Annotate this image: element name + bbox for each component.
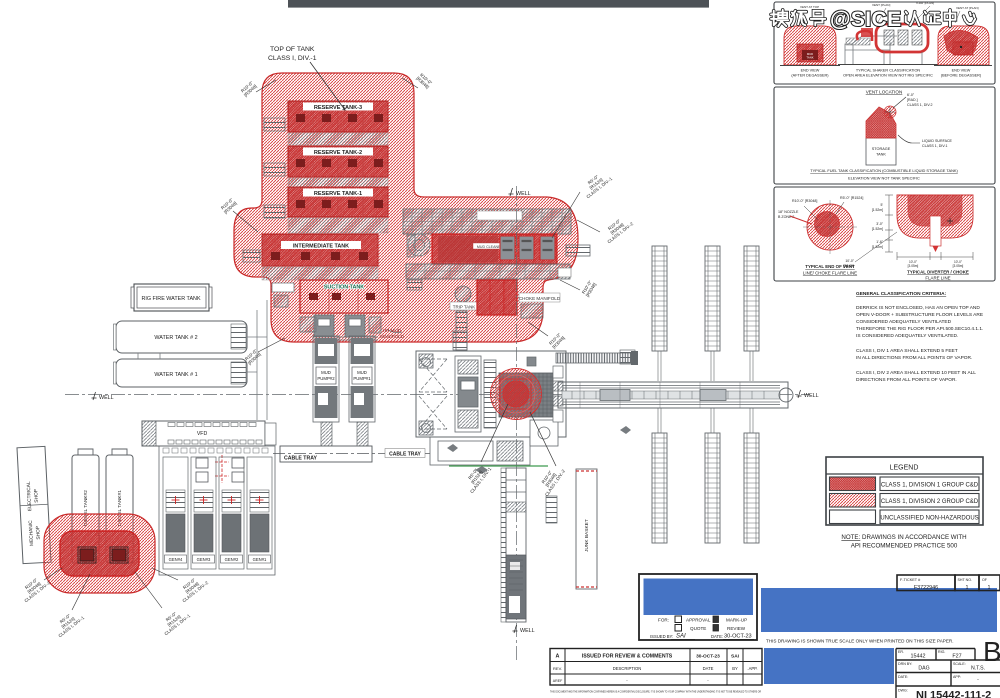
svg-text:RESERVE TANK-1: RESERVE TANK-1 [314, 191, 362, 197]
svg-text:VFD: VFD [197, 431, 208, 437]
svg-text:[1.52m]: [1.52m] [872, 208, 883, 212]
svg-text:INTERMEDIATE TANK: INTERMEDIATE TANK [293, 244, 349, 250]
svg-text:SAI: SAI [676, 634, 686, 640]
svg-text:OPEN V-DOOR + SUBSTRUCTURE FLO: OPEN V-DOOR + SUBSTRUCTURE FLOOR LEVELS … [856, 312, 983, 318]
svg-text:(BEFORE DEGASSER): (BEFORE DEGASSER) [941, 74, 982, 78]
svg-text:ELEVATION VIEW NOT TANK SPECIF: ELEVATION VIEW NOT TANK SPECIFIC [848, 176, 920, 181]
svg-text:CLASS I, DIV.-1: CLASS I, DIV.-1 [268, 55, 317, 62]
svg-text:STORAGE: STORAGE [872, 147, 891, 151]
svg-text:REVIEW: REVIEW [727, 626, 746, 631]
svg-text:THIS DOCUMENT AND THE INFORMAT: THIS DOCUMENT AND THE INFORMATION CONTAI… [550, 690, 761, 694]
svg-text:DATE: DATE [703, 666, 714, 671]
svg-text:F3722946: F3722946 [914, 585, 938, 591]
svg-text:[RAD.]: [RAD.] [907, 98, 918, 102]
svg-text:LIQUID SURFACE: LIQUID SURFACE [922, 139, 953, 143]
svg-text:A: A [556, 654, 560, 660]
svg-text:APPROVAL: APPROVAL [686, 618, 711, 623]
svg-text:R5'-0" [R1524]: R5'-0" [R1524] [840, 196, 863, 200]
svg-text:RIG FIRE WATER TANK: RIG FIRE WATER TANK [141, 296, 201, 302]
svg-text:IN ALL DIRECTIONS FROM ALL POI: IN ALL DIRECTIONS FROM ALL POINTS OF VAP… [856, 355, 972, 361]
svg-text:RESERVE TANK-2: RESERVE TANK-2 [314, 150, 362, 156]
svg-text:CLASS I, DIV 2 AREA SHALL EXTE: CLASS I, DIV 2 AREA SHALL EXTEND 10 FEET… [856, 370, 976, 376]
svg-text:6'-0": 6'-0" [907, 93, 915, 97]
svg-text:RIG.: RIG. [938, 650, 945, 654]
svg-text:CLASS 1, DIVISION 2 GROUP C&D: CLASS 1, DIVISION 2 GROUP C&D [881, 499, 979, 505]
svg-text:DAG: DAG [918, 666, 929, 672]
svg-text:18" NOZZLE: 18" NOZZLE [778, 210, 799, 214]
svg-text:CONSIDERED ADEQUATELY VENTILAT: CONSIDERED ADEQUATELY VENTILATED [856, 319, 952, 325]
svg-text:[3.05m]: [3.05m] [908, 264, 919, 268]
svg-text:TANK: TANK [876, 153, 886, 157]
svg-text:AREF: AREF [553, 679, 563, 683]
svg-text:V-DR' [PLAN]: V-DR' [PLAN] [916, 1, 934, 5]
svg-text:DESCRIPTION: DESCRIPTION [613, 666, 642, 671]
svg-text:GEN#2: GEN#2 [225, 557, 239, 562]
svg-text:HP MUD: HP MUD [383, 328, 402, 333]
svg-text:SUCTION TANK: SUCTION TANK [324, 285, 364, 291]
svg-text:PUMP#1: PUMP#1 [353, 376, 371, 381]
svg-text:TYPICAL FUEL TANK CLASSIFICATI: TYPICAL FUEL TANK CLASSIFICATION (COMBUS… [810, 168, 958, 173]
svg-text:TYPICAL SHAKER CLASSIFICATION: TYPICAL SHAKER CLASSIFICATION [856, 69, 921, 73]
svg-text:GEN#3: GEN#3 [197, 557, 211, 562]
svg-text:THIS DRAWING IS SHOWN TRUE SCA: THIS DRAWING IS SHOWN TRUE SCALE ONLY WH… [766, 639, 954, 644]
svg-text:R10'-0" [R3048]: R10'-0" [R3048] [792, 199, 817, 203]
svg-text:DRN BY:: DRN BY: [898, 662, 912, 666]
svg-text:[1.52m]: [1.52m] [872, 227, 883, 231]
svg-text:DATE:: DATE: [898, 675, 908, 679]
svg-text:@SICE: @SICE [830, 8, 902, 31]
svg-text:MARK-UP: MARK-UP [726, 618, 747, 623]
svg-text:SCALE:: SCALE: [953, 662, 966, 666]
svg-text:ISSUED FOR REVIEW & COMMENTS: ISSUED FOR REVIEW & COMMENTS [582, 654, 673, 660]
svg-text:30-OCT-23: 30-OCT-23 [696, 654, 720, 660]
svg-text:TANK: TANK [806, 55, 813, 59]
svg-text:10'-0": 10'-0" [845, 259, 854, 263]
svg-text:END VIEW: END VIEW [952, 69, 971, 73]
svg-text:30-OCT-23: 30-OCT-23 [724, 634, 752, 640]
svg-text:SHOP: SHOP [33, 489, 40, 503]
svg-text:VENT LOCATION: VENT LOCATION [866, 90, 903, 95]
svg-text:SHOP: SHOP [35, 526, 42, 540]
svg-text:F-TICKET #: F-TICKET # [900, 578, 921, 582]
svg-text:CLASS 1, DIV.2: CLASS 1, DIV.2 [907, 103, 932, 107]
svg-text:MUD: MUD [321, 370, 331, 375]
svg-text:END VIEW: END VIEW [801, 69, 820, 73]
svg-text:-: - [977, 677, 979, 683]
svg-text:ER.: ER. [898, 650, 904, 654]
svg-text:N.T.S.: N.T.S. [971, 666, 985, 672]
svg-text:OF: OF [982, 578, 988, 582]
svg-text:API RECOMMENDED PRACTICE 500: API RECOMMENDED PRACTICE 500 [851, 543, 958, 550]
svg-text:THEREFORE THE RIG FLOOR PER A: THEREFORE THE RIG FLOOR PER API.500.SEC1… [856, 326, 983, 332]
svg-text:MUD: MUD [357, 370, 367, 375]
svg-text:VENT AT [PLAN]: VENT AT [PLAN] [956, 6, 979, 10]
svg-text:QUOTE: QUOTE [690, 626, 706, 631]
svg-text:TOP OF TANK: TOP OF TANK [270, 46, 315, 53]
svg-text:[3.05m]: [3.05m] [953, 264, 964, 268]
svg-text:1: 1 [988, 585, 991, 591]
svg-text:DIRECTIONS FROM ALL POINTS OF: DIRECTIONS FROM ALL POINTS OF VAPOR. [856, 377, 957, 383]
svg-text:FOR:: FOR: [658, 618, 669, 623]
svg-text:F27: F27 [952, 654, 961, 660]
svg-text:APP:: APP: [953, 675, 961, 679]
svg-text:CLASS 1, DIV.1: CLASS 1, DIV.1 [922, 144, 947, 148]
svg-text:WATER TANK # 2: WATER TANK # 2 [154, 335, 197, 341]
svg-text:VENT AT TOP: VENT AT TOP [800, 5, 819, 9]
svg-text:CLASS I, DIV 1 AREA SHALL EXTE: CLASS I, DIV 1 AREA SHALL EXTEND 5 FEET [856, 348, 958, 354]
svg-text:FLARE LINE: FLARE LINE [925, 276, 950, 281]
svg-text:GEN#1: GEN#1 [253, 557, 267, 562]
svg-text:DATE:: DATE: [711, 634, 723, 639]
svg-text:MUD CLEANER: MUD CLEANER [477, 245, 504, 249]
svg-text:PUMP#2: PUMP#2 [317, 376, 335, 381]
svg-text:CABLE TRAY: CABLE TRAY [284, 456, 317, 462]
svg-text:15442: 15442 [911, 654, 926, 660]
svg-text:SAI: SAI [731, 654, 740, 660]
svg-text:RESERVE TANK-3: RESERVE TANK-3 [314, 105, 362, 111]
svg-text:BY: BY [732, 666, 738, 671]
svg-text:.APP.: .APP. [747, 666, 757, 671]
svg-text:LINE/ CHOKE FLARE LINE: LINE/ CHOKE FLARE LINE [803, 271, 857, 276]
svg-text:NOTE: DRAWINGS IN ACCORDANCE W: NOTE: DRAWINGS IN ACCORDANCE WITH [841, 534, 966, 541]
svg-text:GEN#4: GEN#4 [169, 557, 183, 562]
svg-text:WELL: WELL [520, 628, 535, 634]
svg-text:[1.52m]: [1.52m] [872, 245, 883, 249]
svg-text:MANIFOLD: MANIFOLD [380, 334, 404, 339]
svg-text:JUNK BASKET: JUNK BASKET [584, 519, 590, 552]
svg-text:[R3.05]: [R3.05] [843, 264, 854, 268]
svg-text:3'-0": 3'-0" [876, 222, 884, 226]
svg-text:CHOKE MANIFOLD: CHOKE MANIFOLD [519, 296, 561, 301]
svg-text:WATER TANK # 1: WATER TANK # 1 [154, 372, 197, 378]
svg-text:ISSUED BY:: ISSUED BY: [650, 634, 673, 639]
svg-text:IS CONSIDERED ADEQUATELY VENTI: IS CONSIDERED ADEQUATELY VENTILATED. [856, 333, 958, 339]
svg-text:WELL: WELL [516, 191, 531, 197]
svg-text:NI 15442-111-2: NI 15442-111-2 [916, 690, 991, 698]
svg-text:OPEN AREA ELEVATION VIEW NOT R: OPEN AREA ELEVATION VIEW NOT RIG SPECIFI… [843, 74, 933, 78]
svg-text:1: 1 [966, 585, 969, 591]
svg-text:GENERAL CLASSIFICATION CRITERI: GENERAL CLASSIFICATION CRITERIA: [856, 291, 947, 297]
svg-text:(AFTER DEGASSER): (AFTER DEGASSER) [791, 74, 829, 78]
svg-text:CLASS 1, DIVISION 1 GROUP C&D: CLASS 1, DIVISION 1 GROUP C&D [881, 483, 979, 489]
svg-text:TRIP TANK: TRIP TANK [453, 305, 476, 310]
svg-text:VENT [PLAN]: VENT [PLAN] [872, 3, 890, 7]
svg-text:B: B [983, 636, 1000, 667]
svg-text:WELL: WELL [804, 393, 819, 399]
svg-text:SHT NO.: SHT NO. [958, 578, 973, 582]
svg-text:REV.: REV. [553, 666, 562, 671]
svg-text:WELL: WELL [99, 395, 114, 401]
svg-text:DERRICK IS NOT ENCLOSED, HAS A: DERRICK IS NOT ENCLOSED, HAS AN OPEN TOP… [856, 305, 980, 311]
svg-text:UNCLASSIFIED NON-HAZARDOUS: UNCLASSIFIED NON-HAZARDOUS [880, 516, 978, 522]
svg-text:5': 5' [880, 203, 883, 207]
svg-text:TYPICAL DIVERTER / CHOKE: TYPICAL DIVERTER / CHOKE [907, 270, 969, 275]
svg-text:DWG:: DWG: [898, 689, 908, 693]
svg-text:CABLE TRAY: CABLE TRAY [389, 452, 421, 458]
svg-text:LEGEND: LEGEND [890, 465, 919, 472]
